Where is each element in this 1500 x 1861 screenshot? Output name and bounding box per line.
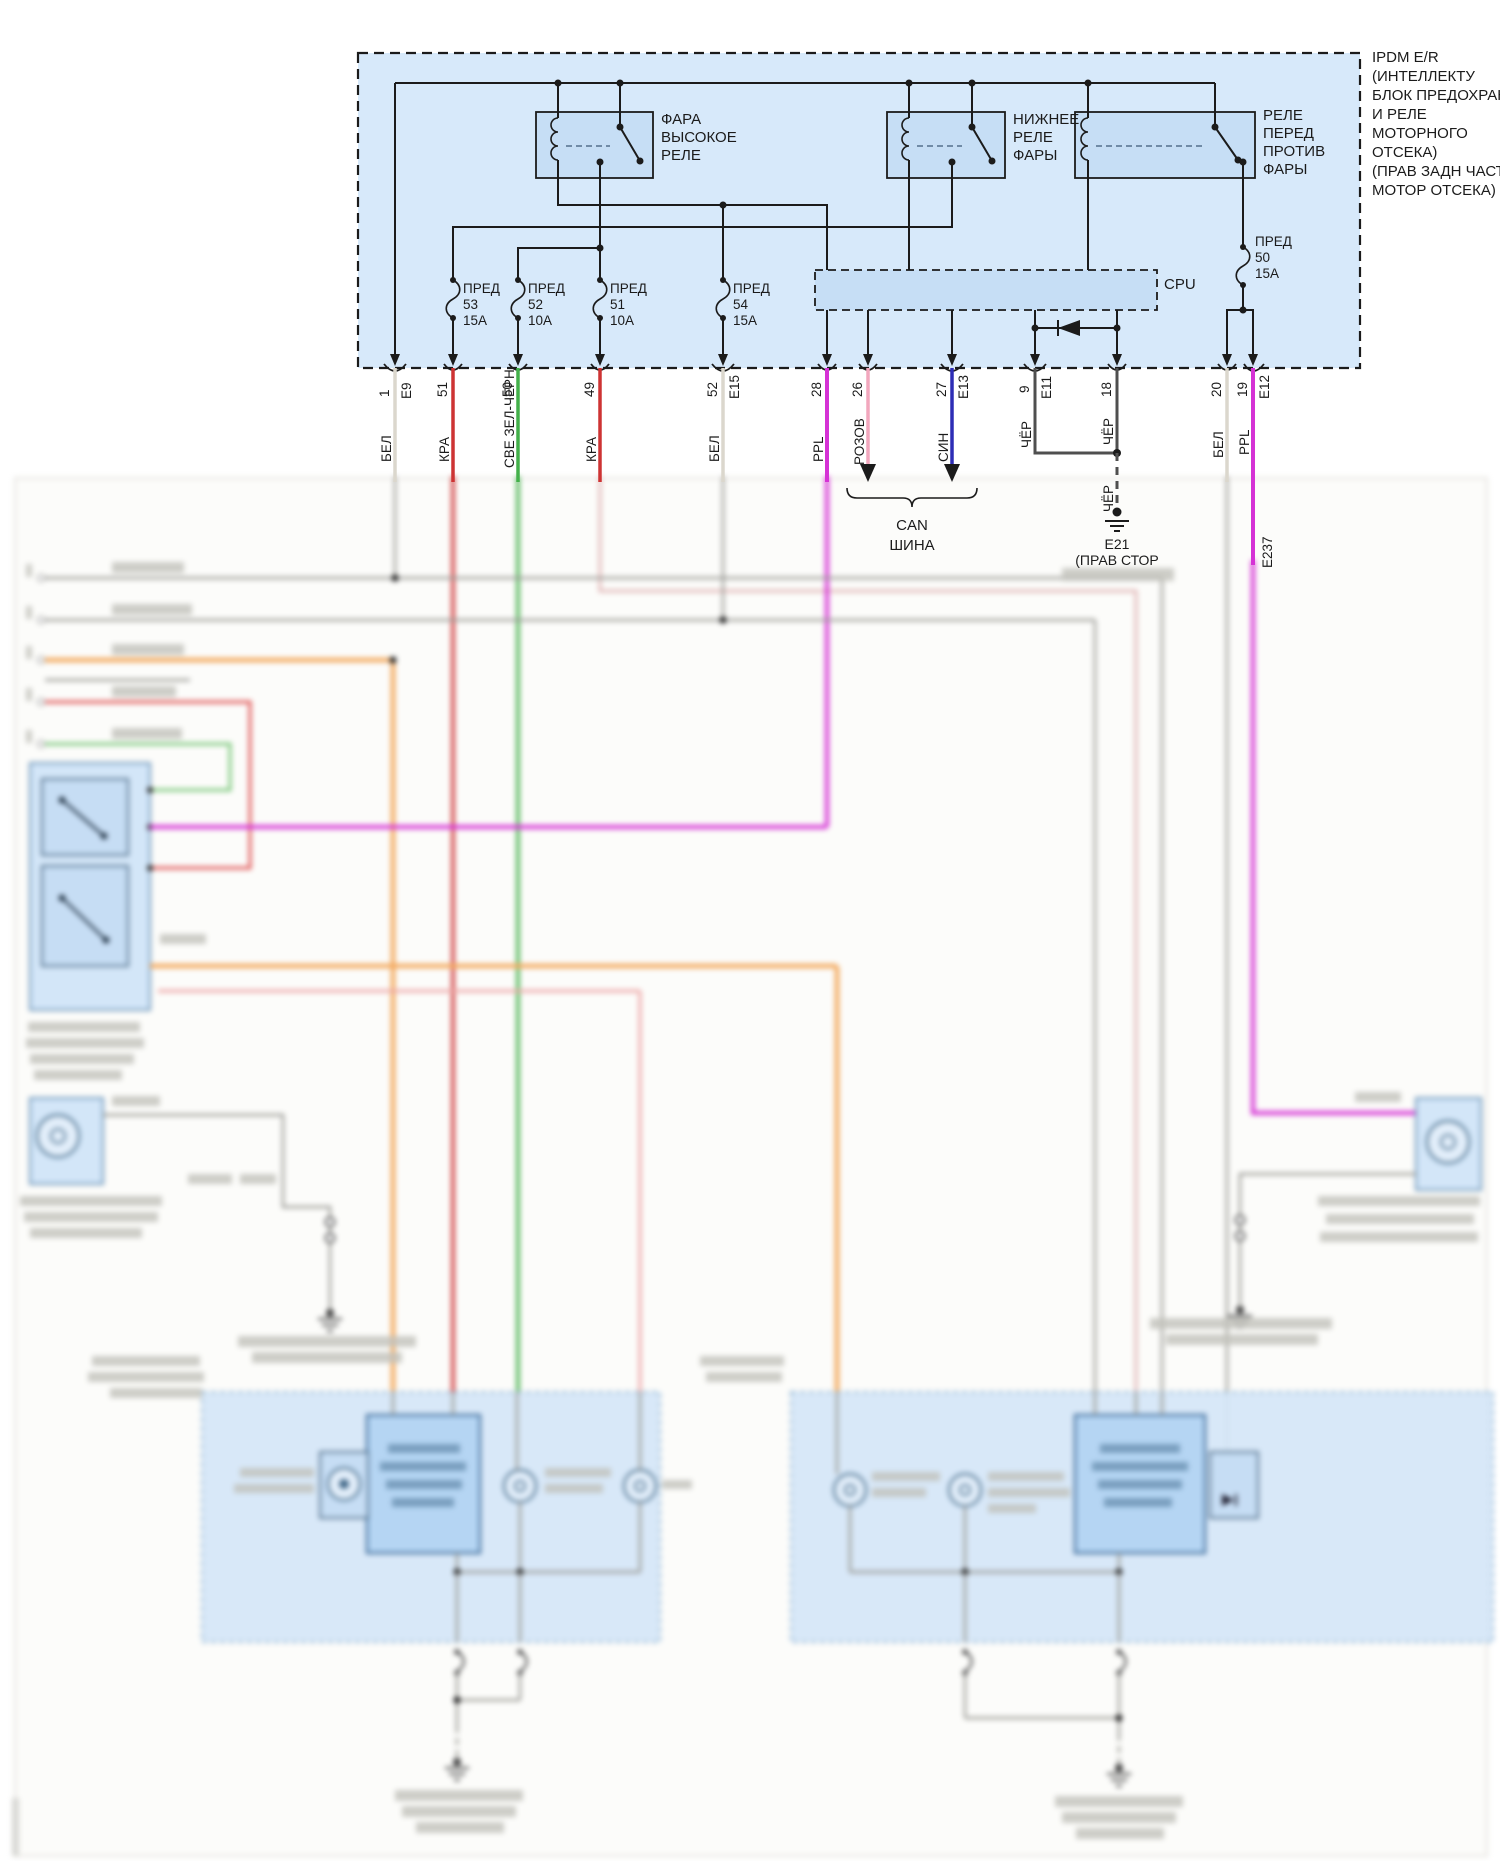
svg-text:51: 51: [435, 382, 450, 397]
svg-text:53: 53: [463, 297, 478, 312]
cpu-box: [815, 270, 1157, 310]
cpu-label: CPU: [1164, 276, 1196, 293]
svg-text:РЕЛЕ: РЕЛЕ: [1013, 129, 1053, 146]
svg-text:E9: E9: [399, 382, 414, 399]
svg-text:КРА: КРА: [437, 437, 452, 462]
svg-text:(ИНТЕЛЛЕКТУ: (ИНТЕЛЛЕКТУ: [1372, 68, 1475, 85]
svg-text:(ПРАВ СТОР: (ПРАВ СТОР: [1075, 552, 1159, 568]
svg-text:ПРЕД: ПРЕД: [463, 281, 500, 296]
svg-text:ПРЕД: ПРЕД: [733, 281, 770, 296]
svg-text:10А: 10А: [528, 313, 552, 328]
ipdm-title-block: IPDM E/R (ИНТЕЛЛЕКТУ БЛОК ПРЕДОХРАНИТ И …: [1372, 49, 1500, 199]
svg-text:И РЕЛЕ: И РЕЛЕ: [1372, 106, 1427, 123]
svg-text:26: 26: [850, 382, 865, 397]
svg-text:БЕЛ: БЕЛ: [707, 435, 722, 462]
svg-text:ФАРЫ: ФАРЫ: [1013, 147, 1057, 164]
svg-text:19: 19: [1235, 382, 1250, 397]
svg-text:КРА: КРА: [584, 437, 599, 462]
ipdm-dashed-box: [358, 53, 1360, 368]
svg-text:10А: 10А: [610, 313, 634, 328]
svg-text:PPL: PPL: [1237, 429, 1252, 455]
svg-text:РОЗОВ: РОЗОВ: [852, 418, 867, 465]
svg-text:ФАРЫ: ФАРЫ: [1263, 161, 1307, 178]
svg-text:E12: E12: [1257, 375, 1272, 399]
svg-text:28: 28: [809, 382, 824, 397]
svg-text:1: 1: [377, 389, 392, 397]
wiring-diagram-page: CPU: [0, 0, 1500, 1861]
svg-text:52: 52: [705, 382, 720, 397]
svg-text:PPL: PPL: [811, 436, 826, 462]
svg-text:52: 52: [528, 297, 543, 312]
svg-text:ШИНА: ШИНА: [889, 537, 934, 554]
svg-text:ЧЁР: ЧЁР: [1019, 421, 1034, 448]
blurred-lower-circuit-section: [12, 476, 1493, 1856]
svg-text:РЕЛЕ: РЕЛЕ: [661, 147, 701, 164]
svg-text:ПРОТИВ: ПРОТИВ: [1263, 143, 1325, 160]
svg-text:СИН: СИН: [936, 433, 951, 462]
svg-text:E11: E11: [1039, 376, 1054, 399]
section-frame: [15, 478, 1487, 1856]
svg-text:МОТОРНОГО: МОТОРНОГО: [1372, 125, 1468, 142]
svg-text:БЛОК ПРЕДОХРАНИТ: БЛОК ПРЕДОХРАНИТ: [1372, 87, 1500, 104]
svg-text:ЧЁР: ЧЁР: [1101, 485, 1116, 512]
watermark: [12, 1798, 19, 1856]
svg-text:51: 51: [610, 297, 625, 312]
svg-text:9: 9: [1017, 385, 1032, 393]
connector-e237-label: E237: [1260, 536, 1275, 568]
svg-text:18: 18: [1099, 382, 1114, 397]
svg-text:ВЫСОКОЕ: ВЫСОКОЕ: [661, 129, 737, 146]
svg-text:НИЖНЕЕ: НИЖНЕЕ: [1013, 111, 1079, 128]
svg-text:ПРЕД: ПРЕД: [528, 281, 565, 296]
svg-text:ОТСЕКА): ОТСЕКА): [1372, 144, 1437, 161]
svg-text:50: 50: [1255, 250, 1270, 265]
svg-text:СВЕ ЗЕЛ-ЧЕРН: СВЕ ЗЕЛ-ЧЕРН: [502, 369, 517, 468]
svg-text:CAN: CAN: [896, 517, 928, 534]
wiring-diagram-canvas: CPU: [0, 0, 1500, 1861]
svg-text:БЕЛ: БЕЛ: [1211, 431, 1226, 458]
svg-text:ФАРА: ФАРА: [661, 111, 701, 128]
svg-text:ПРЕД: ПРЕД: [610, 281, 647, 296]
svg-text:15А: 15А: [463, 313, 487, 328]
svg-text:20: 20: [1209, 382, 1224, 397]
svg-text:E15: E15: [727, 375, 742, 399]
svg-text:РЕЛЕ: РЕЛЕ: [1263, 107, 1303, 124]
svg-text:15А: 15А: [733, 313, 757, 328]
svg-text:МОТОР ОТСЕКА): МОТОР ОТСЕКА): [1372, 182, 1496, 199]
svg-text:ПРЕД: ПРЕД: [1255, 234, 1292, 249]
svg-text:54: 54: [733, 297, 749, 312]
svg-text:БЕЛ: БЕЛ: [379, 435, 394, 462]
svg-text:49: 49: [582, 382, 597, 397]
svg-text:ЧЁР: ЧЁР: [1101, 418, 1116, 445]
svg-text:(ПРАВ ЗАДН ЧАСТЬ: (ПРАВ ЗАДН ЧАСТЬ: [1372, 163, 1500, 180]
svg-text:15А: 15А: [1255, 266, 1279, 281]
svg-text:E13: E13: [956, 375, 971, 399]
svg-text:IPDM E/R: IPDM E/R: [1372, 49, 1439, 66]
blurred-ground-label-line: [1062, 568, 1174, 581]
svg-text:ПЕРЕД: ПЕРЕД: [1263, 125, 1314, 142]
svg-text:E21: E21: [1105, 536, 1130, 552]
svg-text:27: 27: [934, 382, 949, 397]
